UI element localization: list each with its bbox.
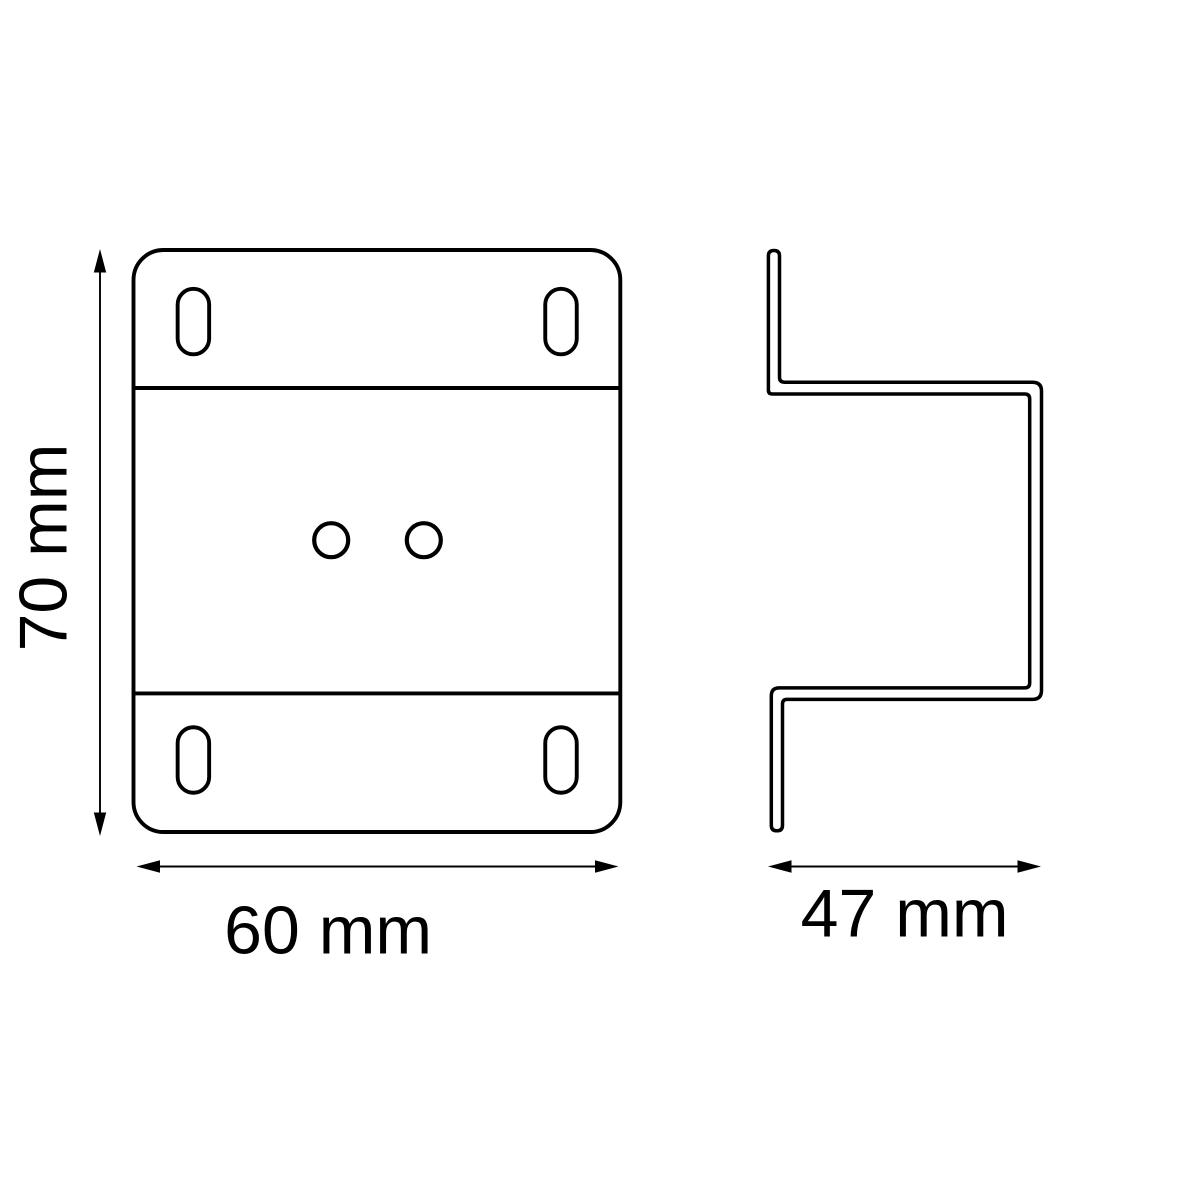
svg-text:60 mm: 60 mm (224, 893, 432, 969)
svg-text:47 mm: 47 mm (801, 875, 1009, 951)
svg-text:70 mm: 70 mm (6, 444, 82, 652)
